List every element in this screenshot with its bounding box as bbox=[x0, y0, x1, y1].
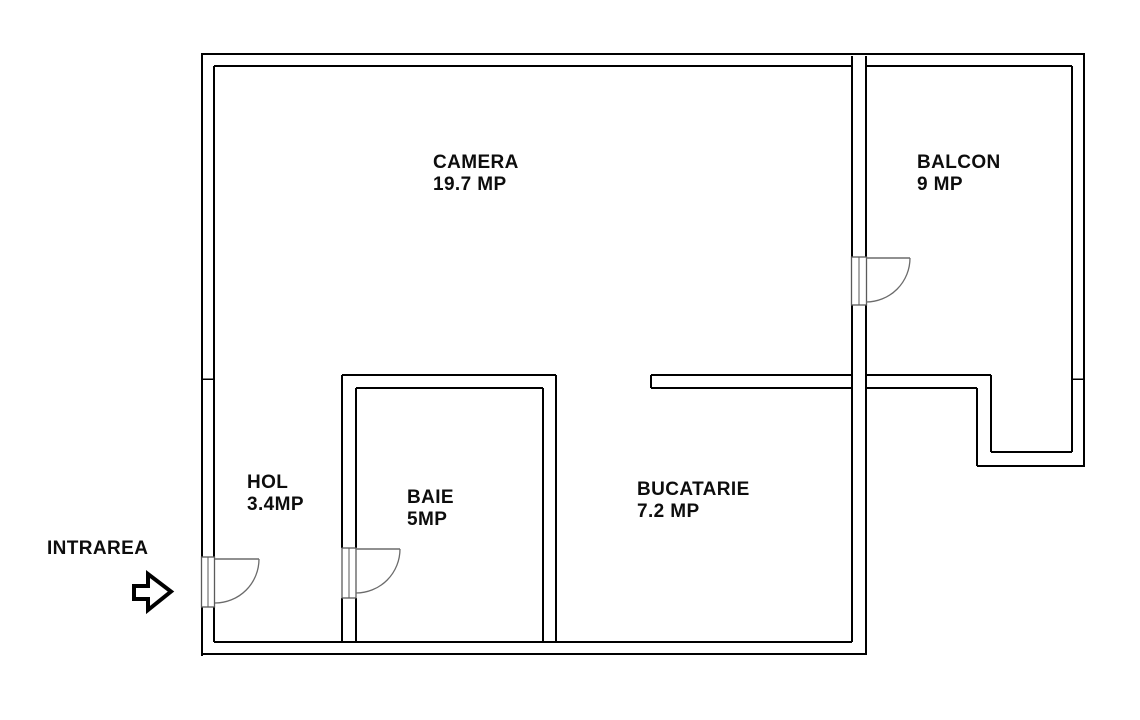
room-name-balcon: BALCON bbox=[917, 152, 1001, 174]
room-area-hol: 3.4MP bbox=[247, 494, 304, 516]
baie-door-swing-arc bbox=[356, 549, 400, 593]
room-label-camera: CAMERA 19.7 MP bbox=[433, 152, 519, 196]
room-label-balcon: BALCON 9 MP bbox=[917, 152, 1001, 196]
room-area-balcon: 9 MP bbox=[917, 174, 1001, 196]
room-label-bucatarie: BUCATARIE 7.2 MP bbox=[637, 479, 750, 523]
room-label-baie: BAIE 5MP bbox=[407, 487, 454, 531]
baie-door bbox=[342, 548, 400, 598]
entrance-label: INTRAREA bbox=[47, 538, 148, 560]
balcon-door-swing-arc bbox=[866, 258, 910, 302]
room-name-hol: HOL bbox=[247, 472, 304, 494]
entrance-label-text: INTRAREA bbox=[47, 538, 148, 560]
floor-plan-page: CAMERA 19.7 MP BALCON 9 MP HOL 3.4MP BAI… bbox=[0, 0, 1140, 720]
room-name-camera: CAMERA bbox=[433, 152, 519, 174]
balcon-door bbox=[852, 257, 911, 305]
room-area-bucatarie: 7.2 MP bbox=[637, 501, 750, 523]
floor-plan-drawing bbox=[0, 0, 1140, 720]
walls bbox=[201, 53, 1085, 656]
entrance-door bbox=[202, 557, 260, 607]
entrance-door-swing-arc bbox=[215, 559, 259, 603]
room-area-baie: 5MP bbox=[407, 509, 454, 531]
room-name-baie: BAIE bbox=[407, 487, 454, 509]
room-name-bucatarie: BUCATARIE bbox=[637, 479, 750, 501]
room-area-camera: 19.7 MP bbox=[433, 174, 519, 196]
room-label-hol: HOL 3.4MP bbox=[247, 472, 304, 516]
right-arrow-icon bbox=[134, 574, 171, 610]
